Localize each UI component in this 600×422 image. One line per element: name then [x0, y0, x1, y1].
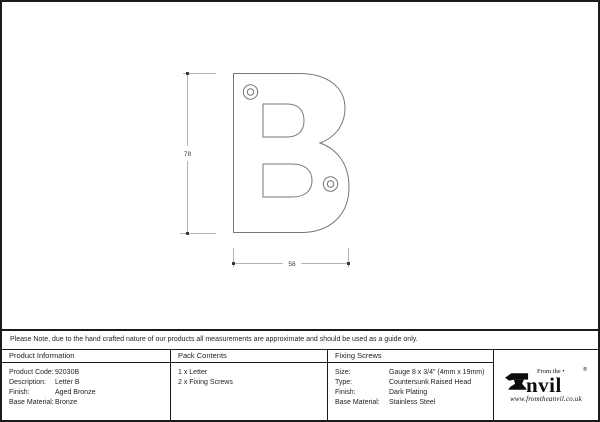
fixing-screws-header: Fixing Screws — [328, 350, 493, 363]
product-code-row: Product Code: 92030B — [9, 368, 170, 378]
screw-size-value: Gauge 8 x 3/4" (4mm x 19mm) — [389, 368, 484, 378]
letter-b-drawing: 78 58 — [2, 2, 598, 329]
product-code-value: 92030B — [55, 368, 79, 378]
product-information-body: Product Code: 92030B Description: Letter… — [2, 363, 170, 408]
height-dimension-label: 78 — [184, 151, 192, 158]
spec-table: Product Information Product Code: 92030B… — [2, 350, 598, 420]
screw-hole-bottom-outer — [323, 177, 337, 191]
finish-value: Aged Bronze — [55, 388, 95, 398]
pack-contents-header: Pack Contents — [171, 350, 327, 363]
brand-logo-cell: From the • nvil ® www.fromtheanvil.co.uk — [494, 350, 598, 420]
screw-finish-label: Finish: — [335, 388, 389, 398]
note-bar: Please Note, due to the hand crafted nat… — [2, 329, 598, 350]
screw-base-material-value: Stainless Steel — [389, 398, 435, 408]
registered-trademark-icon: ® — [583, 367, 587, 373]
letter-b-outer-contour — [234, 74, 350, 233]
spec-sheet: 78 58 — [0, 0, 600, 422]
screw-finish-row: Finish: Dark Plating — [335, 388, 493, 398]
screw-finish-value: Dark Plating — [389, 388, 427, 398]
anvil-logo: From the • nvil ® www.fromtheanvil.co.uk — [505, 367, 587, 403]
pack-contents-column: Pack Contents 1 x Letter 2 x Fixing Scre… — [171, 350, 328, 420]
anvil-logo-mark: From the • nvil ® — [505, 367, 587, 394]
screw-hole-top-inner — [247, 89, 253, 95]
letter-b-outline — [234, 74, 350, 233]
product-code-label: Product Code: — [9, 368, 55, 378]
pack-contents-body: 1 x Letter 2 x Fixing Screws — [171, 363, 327, 388]
logo-wordmark: nvil — [526, 374, 562, 396]
screw-hole-bottom-inner — [327, 181, 333, 187]
width-dimension-label: 58 — [288, 261, 296, 268]
description-label: Description: — [9, 378, 55, 388]
base-material-label: Base Material: — [9, 398, 55, 408]
product-information-column: Product Information Product Code: 92030B… — [2, 350, 171, 420]
base-material-value: Bronze — [55, 398, 77, 408]
letter-b-upper-counter — [263, 104, 304, 137]
finish-label: Finish: — [9, 388, 55, 398]
fixing-screws-body: Size: Gauge 8 x 3/4" (4mm x 19mm) Type: … — [328, 363, 493, 408]
screw-base-material-label: Base Material: — [335, 398, 389, 408]
note-text: Please Note, due to the hand crafted nat… — [10, 336, 418, 343]
screw-hole-top-outer — [243, 85, 257, 99]
product-information-header: Product Information — [2, 350, 170, 363]
technical-drawing-area: 78 58 — [2, 2, 598, 329]
logo-tagline-dot: • — [562, 368, 564, 375]
description-value: Letter B — [55, 378, 80, 388]
screw-base-material-row: Base Material: Stainless Steel — [335, 398, 493, 408]
fixing-screws-column: Fixing Screws Size: Gauge 8 x 3/4" (4mm … — [328, 350, 494, 420]
pack-item-screws: 2 x Fixing Screws — [178, 378, 327, 388]
finish-row: Finish: Aged Bronze — [9, 388, 170, 398]
screw-type-value: Countersunk Raised Head — [389, 378, 471, 388]
letter-b-lower-counter — [263, 164, 312, 197]
screw-size-row: Size: Gauge 8 x 3/4" (4mm x 19mm) — [335, 368, 493, 378]
screw-type-label: Type: — [335, 378, 389, 388]
base-material-row: Base Material: Bronze — [9, 398, 170, 408]
screw-type-row: Type: Countersunk Raised Head — [335, 378, 493, 388]
description-row: Description: Letter B — [9, 378, 170, 388]
screw-size-label: Size: — [335, 368, 389, 378]
pack-item-letter: 1 x Letter — [178, 368, 327, 378]
